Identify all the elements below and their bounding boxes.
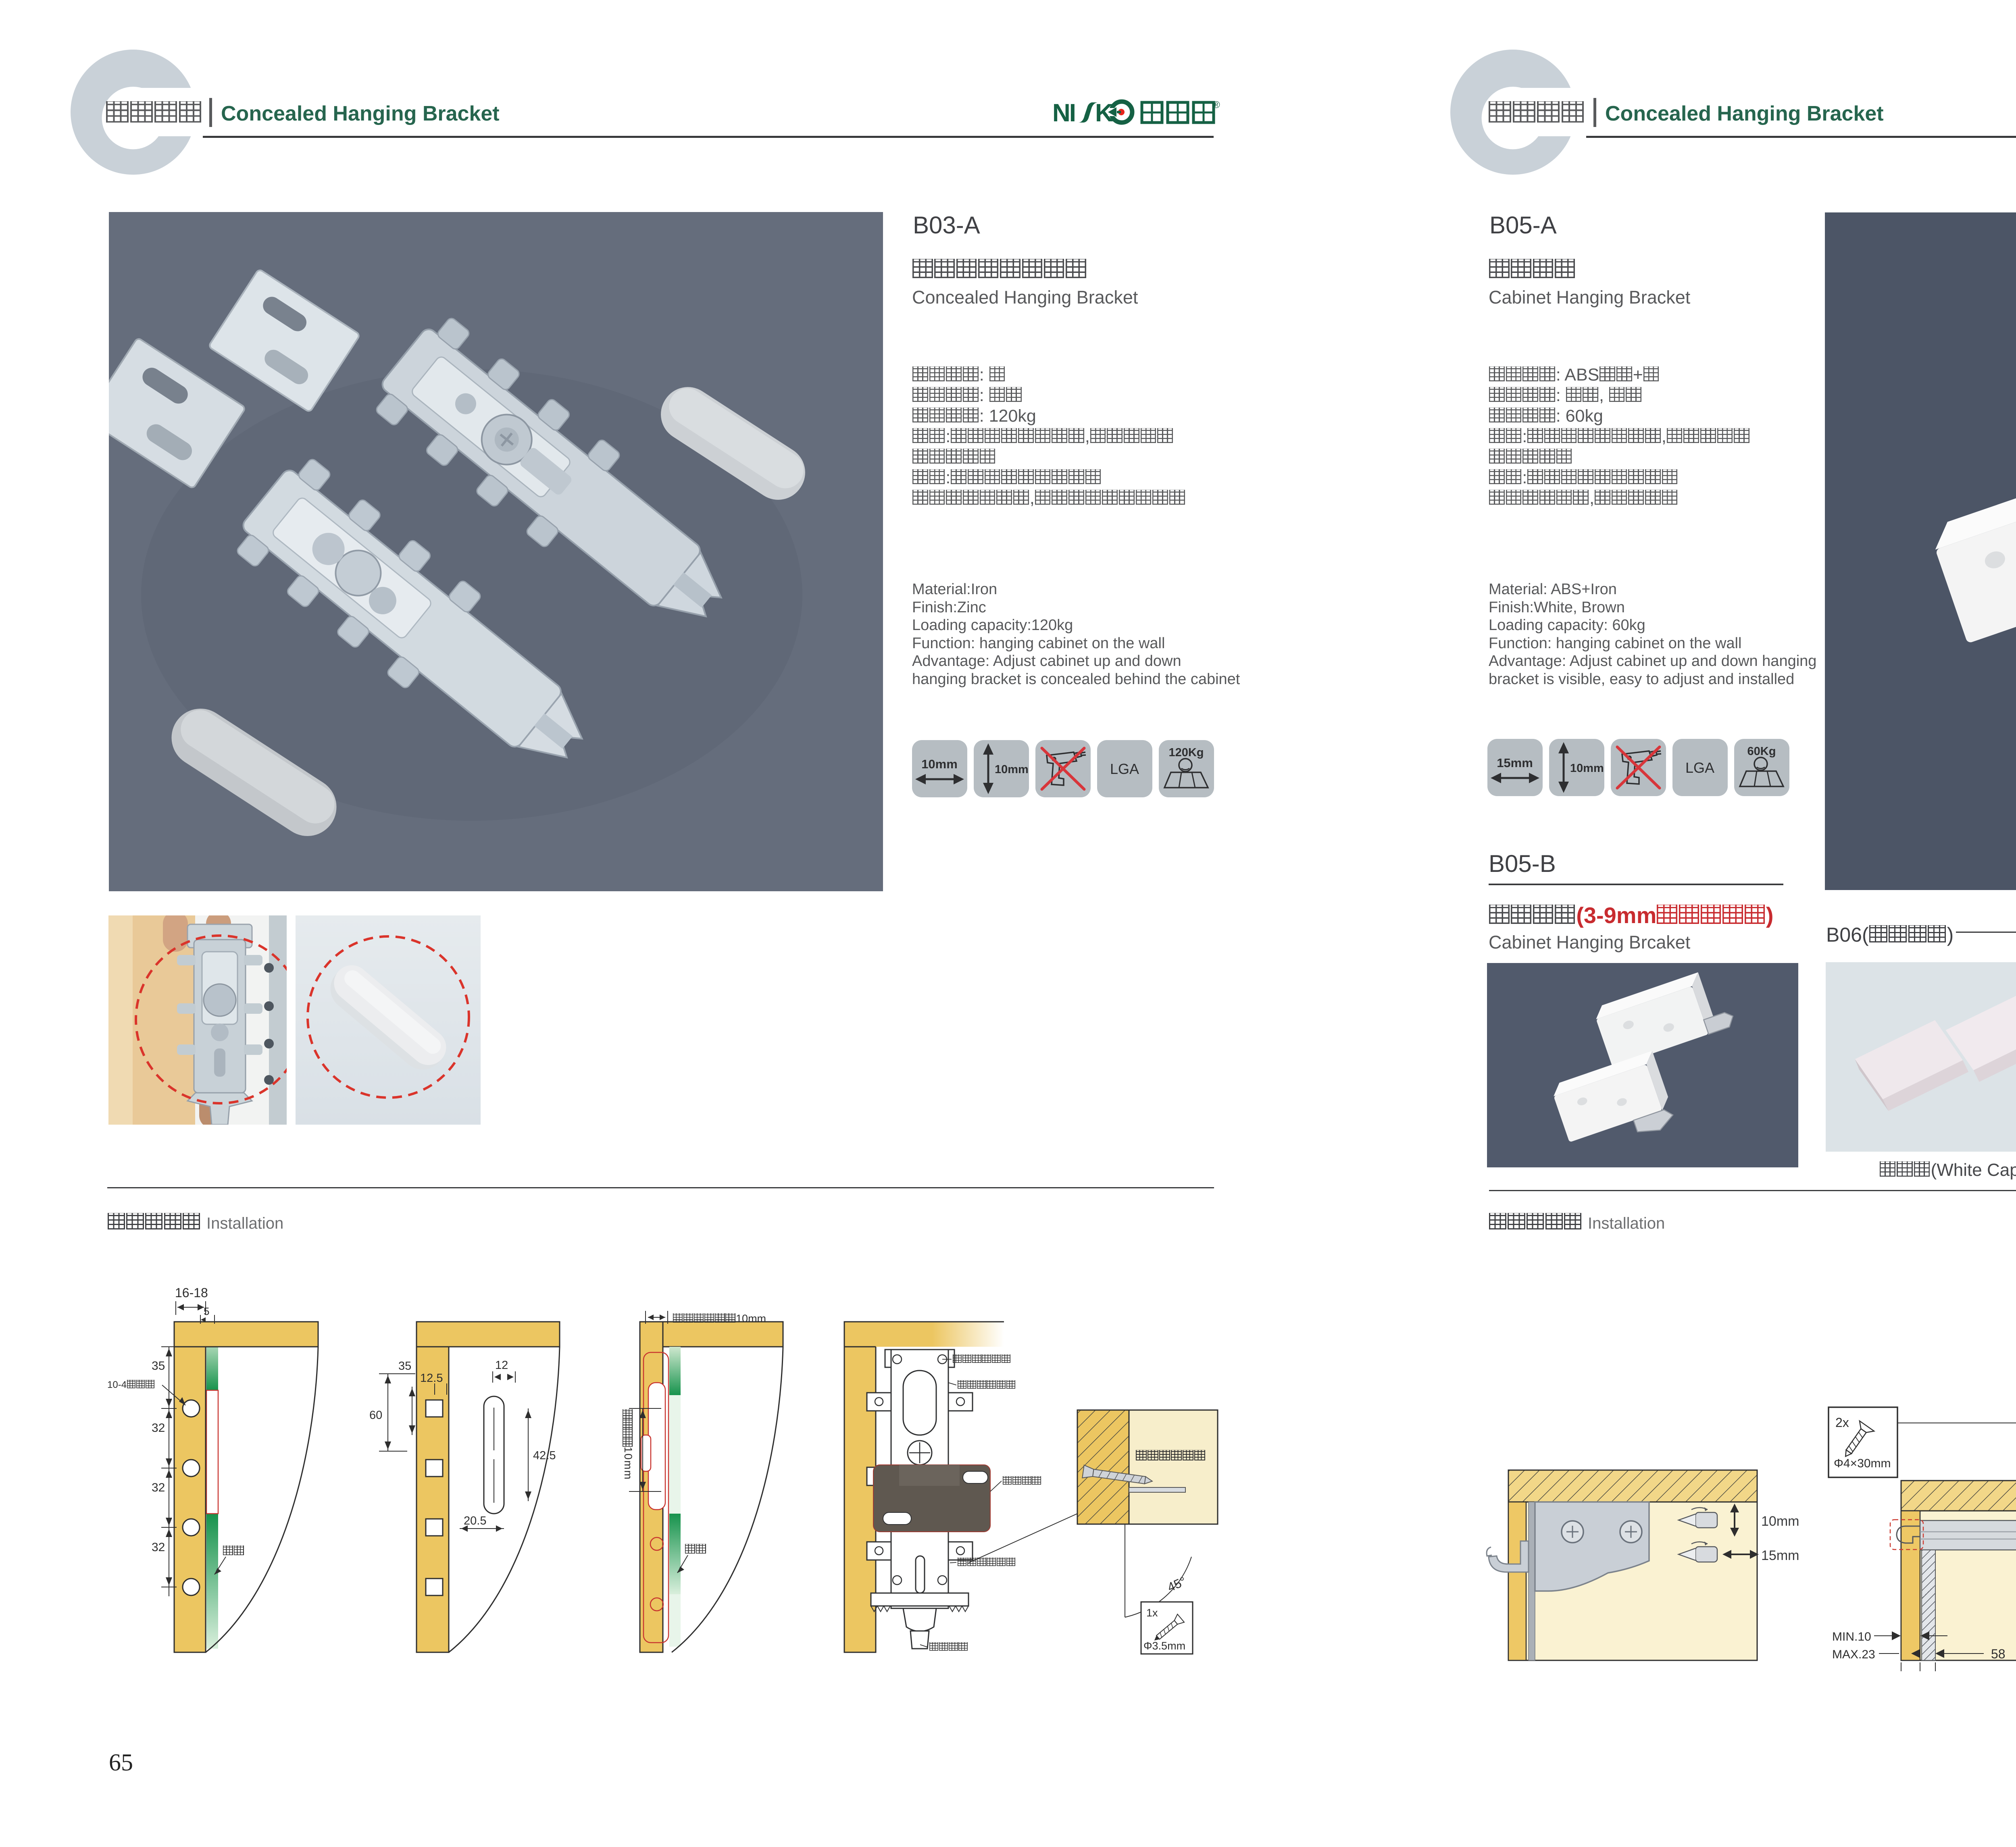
svg-text:NI: NI bbox=[1052, 99, 1075, 127]
svg-text:42.5: 42.5 bbox=[533, 1449, 556, 1462]
svg-text:5: 5 bbox=[204, 1305, 209, 1317]
svg-text:1x: 1x bbox=[1146, 1607, 1158, 1619]
svg-text:10mm: 10mm bbox=[1570, 762, 1604, 775]
svg-text:60Kg: 60Kg bbox=[1747, 745, 1776, 758]
svg-text:16-18: 16-18 bbox=[175, 1285, 208, 1300]
svg-text:15mm: 15mm bbox=[1497, 756, 1533, 770]
svg-text:15mm: 15mm bbox=[1761, 1548, 1799, 1563]
svg-text:Φ3.5mm: Φ3.5mm bbox=[1143, 1640, 1185, 1652]
svg-text:MIN.10: MIN.10 bbox=[1832, 1630, 1871, 1643]
svg-text:12: 12 bbox=[495, 1359, 508, 1372]
svg-text:35: 35 bbox=[152, 1359, 165, 1373]
svg-text:2x: 2x bbox=[1835, 1415, 1849, 1430]
svg-text:12.5: 12.5 bbox=[420, 1372, 443, 1385]
svg-text:10mm: 10mm bbox=[921, 757, 958, 771]
svg-text:60: 60 bbox=[369, 1409, 382, 1422]
svg-text:LGA: LGA bbox=[1110, 761, 1139, 777]
svg-text:®: ® bbox=[1213, 100, 1220, 110]
svg-text:32: 32 bbox=[152, 1421, 165, 1435]
svg-text:32: 32 bbox=[152, 1541, 165, 1554]
svg-text:58: 58 bbox=[1991, 1647, 2006, 1661]
svg-text:32: 32 bbox=[152, 1481, 165, 1494]
svg-text:Φ4×30mm: Φ4×30mm bbox=[1834, 1457, 1891, 1470]
svg-text:10mm: 10mm bbox=[995, 763, 1029, 776]
svg-text:LGA: LGA bbox=[1685, 759, 1714, 776]
svg-text:45°: 45° bbox=[1165, 1574, 1188, 1595]
svg-text:35: 35 bbox=[398, 1360, 411, 1373]
svg-text:20.5: 20.5 bbox=[464, 1514, 486, 1527]
svg-text:MAX.23: MAX.23 bbox=[1832, 1648, 1875, 1661]
svg-text:120Kg: 120Kg bbox=[1168, 746, 1204, 759]
svg-text:10mm: 10mm bbox=[1761, 1514, 1799, 1529]
